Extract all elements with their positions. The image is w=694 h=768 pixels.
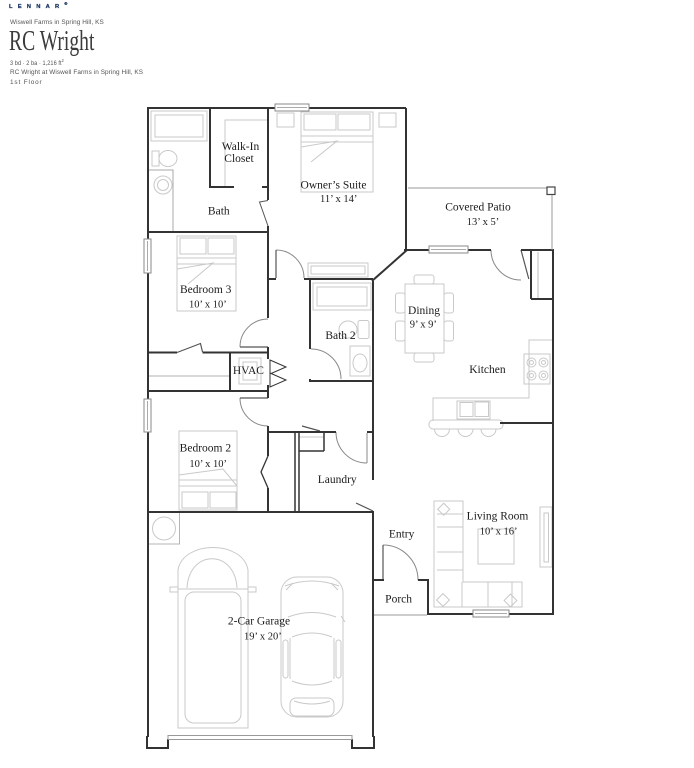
svg-text:Bedroom 2: Bedroom 2 [180,443,232,455]
svg-text:Owner’s Suite: Owner’s Suite [301,179,367,191]
svg-text:9’ x 9’: 9’ x 9’ [410,320,437,331]
svg-text:Porch: Porch [385,594,412,606]
svg-text:10’ x 10’: 10’ x 10’ [189,300,227,311]
svg-text:Entry: Entry [389,528,415,540]
svg-text:Walk-In: Walk-In [222,141,260,153]
svg-text:11’ x 14’: 11’ x 14’ [320,194,357,205]
svg-text:Bedroom 3: Bedroom 3 [180,284,232,296]
svg-text:10’ x 10’: 10’ x 10’ [189,459,227,470]
svg-text:Living Room: Living Room [467,511,529,523]
svg-text:Bath 2: Bath 2 [325,330,356,342]
svg-text:Covered Patio: Covered Patio [445,202,511,214]
svg-text:Closet: Closet [224,153,254,165]
svg-text:13’ x 5’: 13’ x 5’ [467,217,499,228]
svg-text:Kitchen: Kitchen [469,364,506,376]
svg-text:Laundry: Laundry [318,474,357,486]
svg-text:Bath: Bath [208,206,230,218]
svg-text:2-Car Garage: 2-Car Garage [228,616,290,628]
svg-text:Dining: Dining [408,305,440,317]
svg-text:19’ x 20’: 19’ x 20’ [244,631,282,642]
svg-text:10’ x 16’: 10’ x 16’ [480,526,518,537]
svg-text:HVAC: HVAC [233,365,264,377]
